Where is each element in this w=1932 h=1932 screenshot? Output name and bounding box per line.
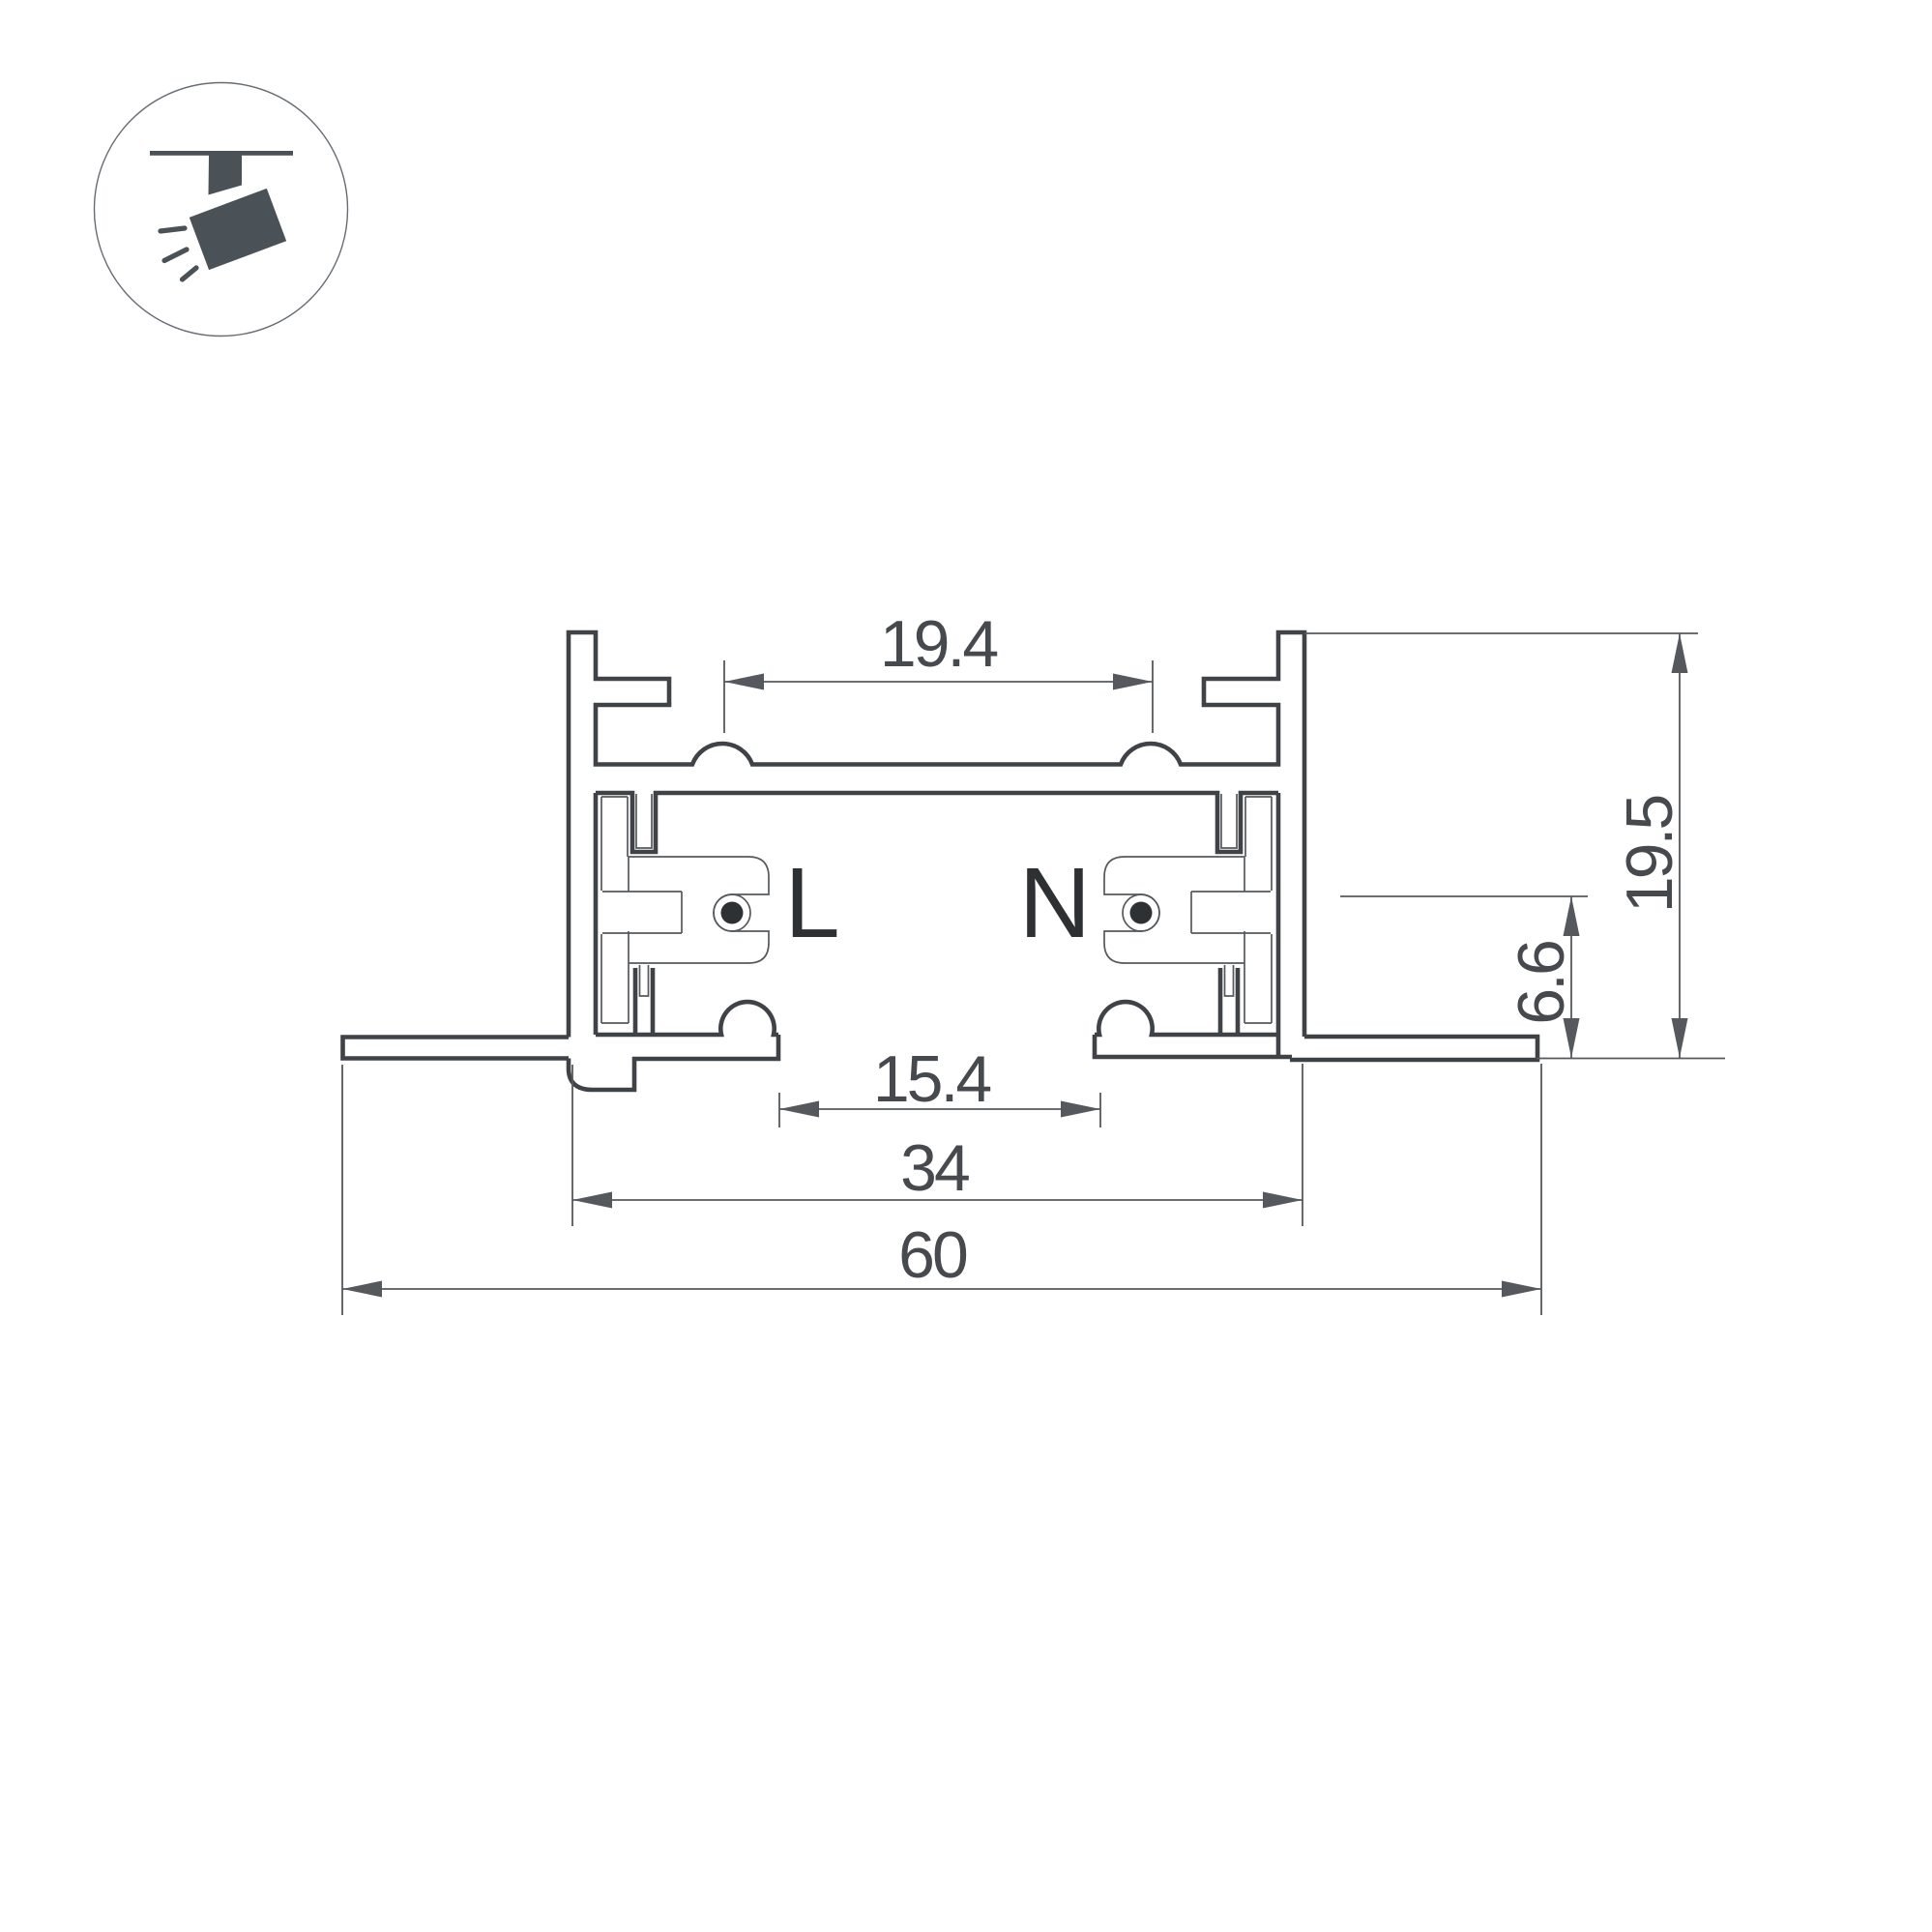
svg-text:15.4: 15.4 bbox=[873, 1042, 991, 1116]
svg-text:L: L bbox=[784, 847, 839, 958]
svg-text:19.4: 19.4 bbox=[880, 607, 998, 681]
svg-text:6.6: 6.6 bbox=[1505, 942, 1578, 1025]
svg-text:19.5: 19.5 bbox=[1613, 797, 1686, 914]
svg-text:34: 34 bbox=[900, 1131, 969, 1205]
svg-text:60: 60 bbox=[898, 1218, 967, 1292]
svg-text:N: N bbox=[1019, 847, 1091, 958]
